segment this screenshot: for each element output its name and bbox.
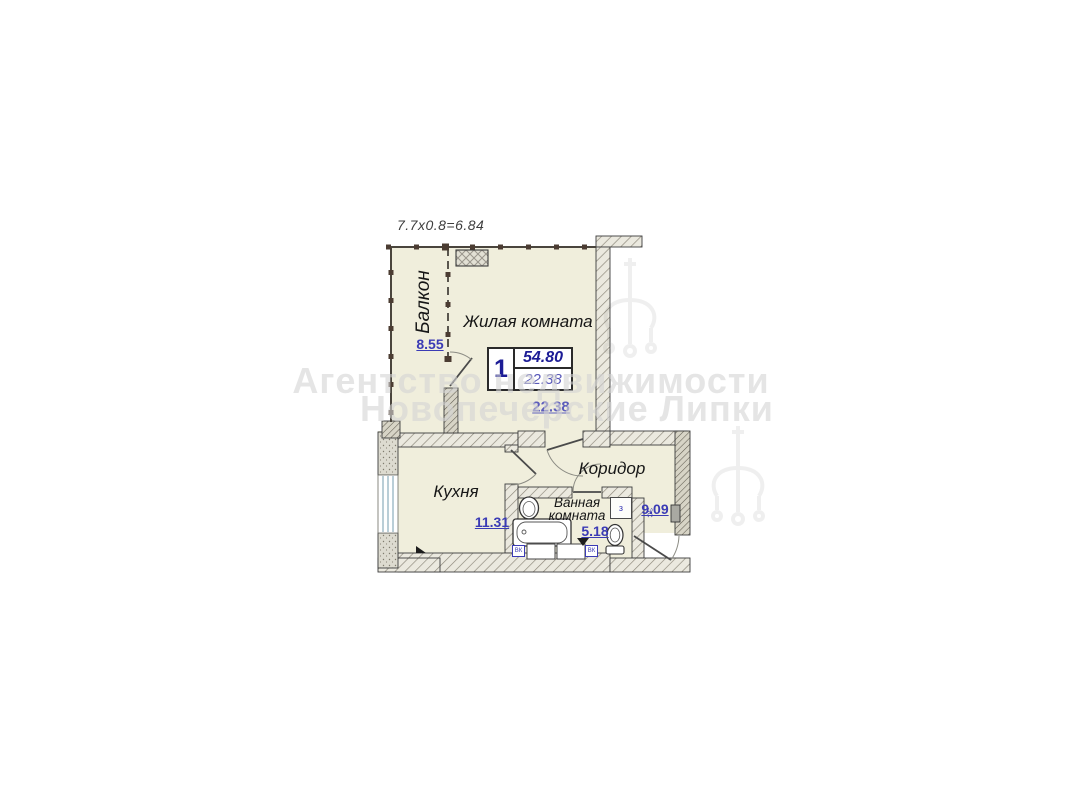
bathroom-area: 5.18 [581,523,608,539]
wall-kitchen-west-top [378,432,398,475]
kitchen-window [378,475,398,533]
water-meter-left-label: ВК [515,548,523,554]
bathroom-label: Ванная комната [542,496,612,522]
cabinet-right [557,544,585,559]
shaft-box: з [610,497,632,519]
dimension-note: 7.7х0.8=6.84 [397,217,484,233]
stat-total-area: 54.80 [515,349,571,369]
balcony-label: Балкон [413,270,435,333]
living-room-area: 22.38 [532,399,570,416]
balcony-area: 8.55 [416,336,443,352]
wall-kitchen-west-bottom [378,533,398,568]
kitchen-area: 11.31 [475,514,509,530]
wall-top-right-stub [596,236,642,247]
water-meter-right: ВК [585,545,598,557]
apartment-stat-box: 1 54.80 22.38 [487,347,573,391]
electrical-panel-label: ЭС [646,507,653,517]
wall-divider-block [444,388,458,433]
kitchen-label: Кухня [433,482,478,502]
wall-living-corridor-a [518,431,545,447]
water-meter-right-label: ВК [588,548,596,554]
living-room-label: Жилая комната [463,312,592,332]
vent-shaft-box [456,250,488,266]
floor-plan: 7.7х0.8=6.84 Балкон 8.55 Жилая комната 2… [0,0,1067,801]
stat-room-count: 1 [489,349,515,389]
shaft-box-label: з [619,503,623,513]
toilet-icon [606,525,624,555]
wall-living-corridor-b [583,431,610,447]
sink-icon [520,497,539,519]
bathroom-label-line2: комната [549,508,606,523]
wall-living-right [596,247,610,445]
wall-kitchen-top [395,433,518,447]
wall-bottom-right [610,558,690,572]
cabinet-left [527,544,555,559]
water-meter-left: ВК [512,545,525,557]
electrical-panel-icon [671,505,680,522]
stat-living-area: 22.38 [515,369,571,389]
corridor-label: Коридор [579,459,646,479]
bathtub-icon [513,519,571,546]
wall-balcony-corner-block [382,421,400,438]
